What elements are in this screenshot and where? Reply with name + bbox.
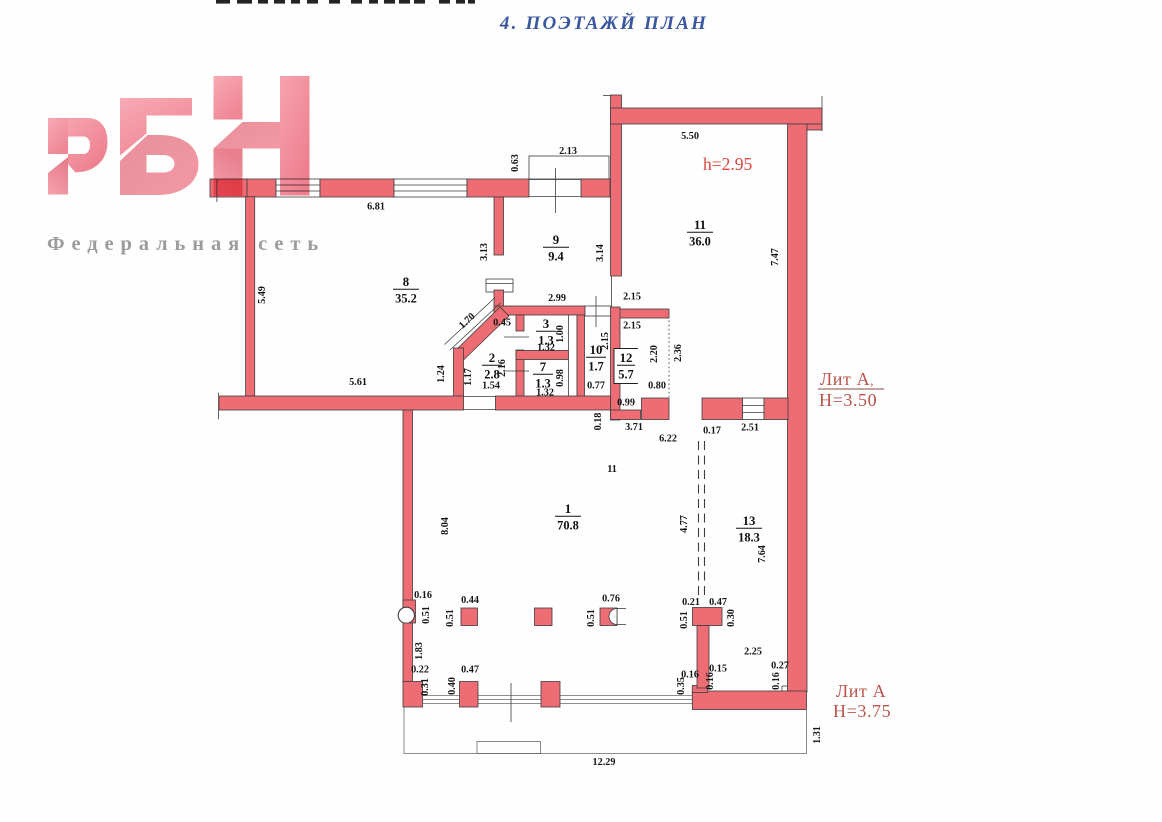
svg-text:5.50: 5.50 (681, 131, 699, 142)
svg-text:5.49: 5.49 (257, 286, 268, 304)
svg-text:2.13: 2.13 (559, 146, 577, 157)
svg-text:Федеральная сеть: Федеральная сеть (47, 233, 325, 255)
svg-text:7.64: 7.64 (757, 545, 768, 563)
svg-text:0.76: 0.76 (602, 594, 620, 605)
svg-text:Н=3.50: Н=3.50 (819, 390, 877, 410)
svg-text:2.8: 2.8 (484, 368, 500, 382)
svg-text:8: 8 (403, 275, 409, 289)
svg-text:4. ПОЭТАЖЙ ПЛАН: 4. ПОЭТАЖЙ ПЛАН (499, 11, 708, 34)
svg-text:3.13: 3.13 (479, 243, 490, 261)
svg-text:0.31: 0.31 (420, 678, 431, 696)
svg-text:0.45: 0.45 (493, 318, 511, 329)
svg-text:0.21: 0.21 (682, 597, 700, 608)
svg-text:1.3: 1.3 (535, 377, 551, 391)
svg-text:Лит А,: Лит А, (820, 369, 874, 389)
svg-text:0.40: 0.40 (447, 677, 458, 695)
svg-text:0.77: 0.77 (587, 381, 605, 392)
svg-text:2.36: 2.36 (673, 344, 684, 362)
svg-text:0.16: 0.16 (705, 672, 716, 690)
svg-text:1.83: 1.83 (414, 642, 425, 660)
svg-text:12.29: 12.29 (593, 757, 616, 768)
svg-text:7.47: 7.47 (770, 248, 781, 266)
svg-text:1.7: 1.7 (588, 360, 604, 374)
svg-text:2.99: 2.99 (548, 293, 566, 304)
svg-text:9.4: 9.4 (548, 250, 564, 264)
svg-text:6.81: 6.81 (367, 202, 385, 213)
svg-text:9: 9 (553, 233, 559, 247)
svg-text:1.31: 1.31 (812, 726, 823, 744)
svg-text:Н=3.75: Н=3.75 (833, 701, 891, 721)
svg-text:2.15: 2.15 (623, 321, 641, 332)
svg-text:35.2: 35.2 (395, 292, 417, 306)
svg-text:2.51: 2.51 (741, 423, 759, 434)
svg-text:5.7: 5.7 (618, 368, 634, 382)
svg-text:13: 13 (743, 514, 756, 528)
svg-text:0.16: 0.16 (414, 590, 432, 601)
svg-text:18.3: 18.3 (738, 531, 760, 545)
svg-text:0.51: 0.51 (586, 609, 597, 627)
svg-text:5.61: 5.61 (349, 377, 367, 388)
svg-text:4.77: 4.77 (679, 515, 690, 533)
svg-text:0.16: 0.16 (771, 672, 782, 690)
svg-text:1.54: 1.54 (482, 381, 500, 392)
svg-text:2.15: 2.15 (623, 292, 641, 303)
svg-text:1: 1 (565, 502, 571, 516)
svg-text:8.04: 8.04 (440, 517, 451, 535)
svg-text:7: 7 (540, 360, 547, 374)
svg-text:0.51: 0.51 (421, 606, 432, 624)
svg-text:1.3: 1.3 (538, 334, 554, 348)
svg-text:3: 3 (543, 317, 549, 331)
svg-text:0.30: 0.30 (726, 609, 737, 627)
svg-text:2: 2 (489, 351, 495, 365)
svg-text:0.47: 0.47 (709, 597, 727, 608)
svg-text:0.98: 0.98 (555, 369, 566, 387)
svg-text:2.20: 2.20 (649, 345, 660, 363)
svg-text:11: 11 (607, 464, 617, 475)
svg-text:0.17: 0.17 (703, 426, 721, 437)
svg-text:0.47: 0.47 (461, 665, 479, 676)
svg-text:Лит А: Лит А (836, 681, 886, 701)
svg-text:2.25: 2.25 (744, 647, 762, 658)
svg-text:0.51: 0.51 (445, 609, 456, 627)
svg-text:0.63: 0.63 (510, 154, 521, 172)
svg-text:70.8: 70.8 (557, 519, 579, 533)
svg-text:1.17: 1.17 (463, 368, 474, 386)
svg-text:0.18: 0.18 (593, 413, 604, 431)
svg-text:h=2.95: h=2.95 (703, 154, 752, 174)
svg-text:0.22: 0.22 (411, 665, 429, 676)
svg-text:1.24: 1.24 (436, 365, 447, 383)
svg-text:10: 10 (590, 343, 603, 357)
svg-text:0.99: 0.99 (617, 398, 635, 409)
svg-text:1.00: 1.00 (555, 325, 566, 343)
svg-text:0.80: 0.80 (648, 381, 666, 392)
svg-text:12: 12 (620, 351, 633, 365)
svg-text:0.27: 0.27 (771, 661, 789, 672)
svg-text:0.44: 0.44 (461, 595, 479, 606)
svg-text:36.0: 36.0 (689, 235, 711, 249)
svg-text:1.70: 1.70 (457, 311, 478, 331)
svg-text:11: 11 (694, 218, 706, 232)
svg-text:6.22: 6.22 (659, 434, 677, 445)
svg-text:3.71: 3.71 (625, 422, 643, 433)
svg-text:3.14: 3.14 (595, 244, 606, 262)
svg-text:0.35: 0.35 (676, 677, 687, 695)
svg-text:0.51: 0.51 (679, 611, 690, 629)
